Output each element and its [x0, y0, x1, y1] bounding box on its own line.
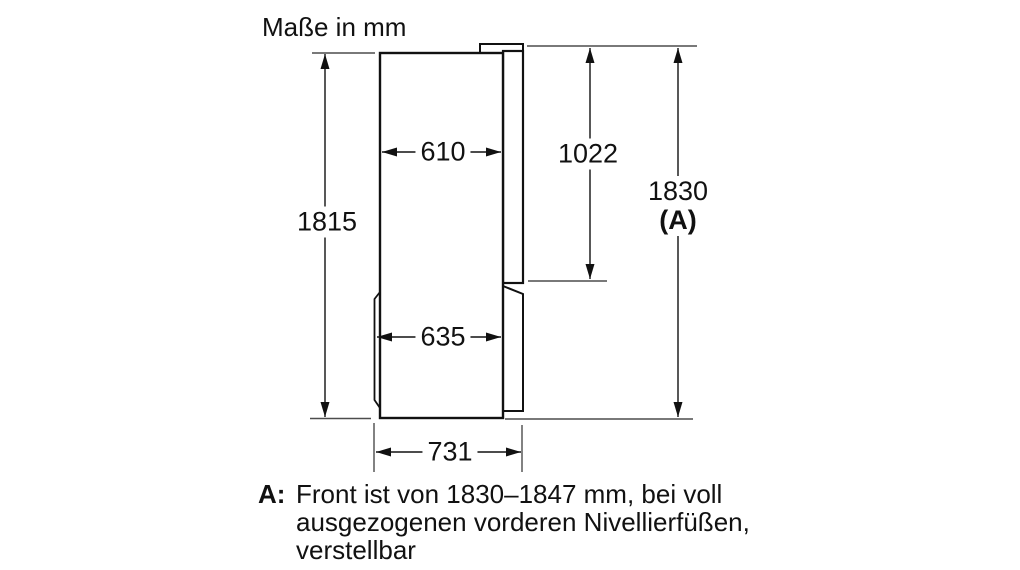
overall-height-value: 1830 — [648, 176, 708, 206]
base-depth-label: 635 — [415, 322, 470, 353]
diagram-title: Maße in mm — [262, 13, 406, 41]
overall-height-suffix: (A) — [659, 205, 696, 235]
arrow-left-icon — [376, 448, 391, 457]
arrow-right-icon — [506, 448, 521, 457]
fridge-outline — [375, 44, 524, 418]
arrow-down-icon — [674, 402, 683, 417]
footnote-marker: A: — [258, 480, 285, 508]
fridge-body — [380, 53, 503, 418]
fridge-lower-door — [503, 286, 523, 411]
footnote-line-2: ausgezogenen vorderen Nivellierfüßen, — [296, 508, 750, 536]
overall-height-label: 1830 (A) — [643, 176, 713, 236]
dimension-diagram: Maße in mm 1815 610 1022 1830 (A) 635 73… — [0, 0, 1020, 570]
arrow-down-icon — [321, 402, 330, 417]
body-height-label: 1815 — [292, 207, 362, 238]
overall-depth-label: 731 — [422, 437, 477, 468]
body-depth-label: 610 — [415, 137, 470, 168]
arrow-down-icon — [586, 264, 595, 279]
arrow-up-icon — [674, 48, 683, 63]
arrow-up-icon — [586, 48, 595, 63]
fridge-upper-door — [503, 51, 523, 283]
arrow-up-icon — [321, 54, 330, 69]
footnote-line-1: Front ist von 1830–1847 mm, bei voll — [296, 480, 722, 508]
door-height-label: 1022 — [553, 139, 623, 170]
footnote-line-3: verstellbar — [296, 536, 416, 564]
